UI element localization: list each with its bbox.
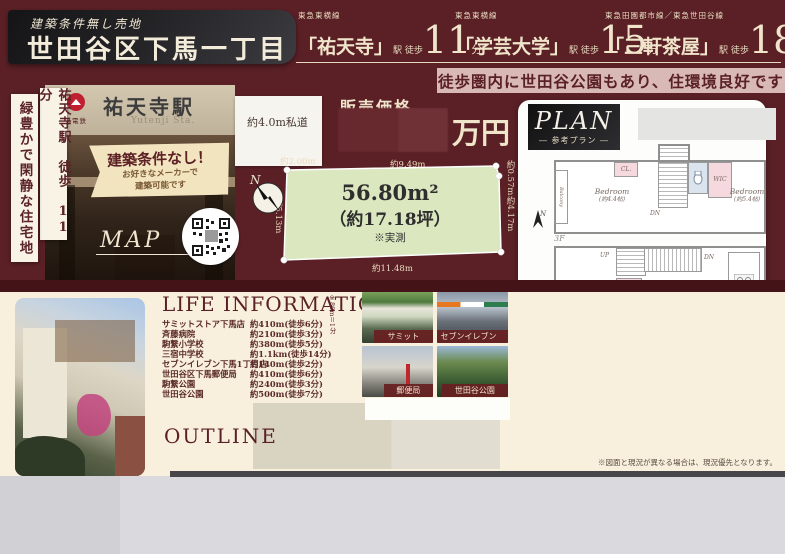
photo-summit: サミット [362,292,433,343]
stairs-2f-dn [644,248,702,272]
plan-badge: PLAN ― 参考プラン ― [528,104,620,150]
facility-name: 世田谷公園 [162,388,204,400]
park-note-text: 徒歩圏内に世田谷公園もあり、住環境良好です [438,70,784,92]
station-name: 「祐天寺」 [298,36,393,58]
station-walk-label: 駅 徒歩 [719,46,749,56]
station-line-label: 東急東横線 [455,10,605,21]
catchcopy-quiet-area: 緑豊かで閑静な住宅地 [11,94,38,262]
plan-compass-icon: N [528,208,548,230]
footer-disclaimer: ※図面と現況が異なる場合は、現況優先となります。 [0,457,777,468]
photo-caption: 郵便局 [384,384,433,397]
photo-detail [55,320,135,362]
catchcopy-station-walk: 祐天寺駅 徒歩 11分 [40,88,67,240]
station-access-sangenjaya: 東急田園都市線／東急世田谷線 「三軒茶屋」駅 徒歩18分 [605,10,783,62]
price-redacted-box [338,108,448,152]
list-item: セブンイレブン下馬1丁目店約140m(徒歩2分) [162,358,342,368]
bottom-dark-bar [170,471,785,477]
list-item: 世田谷区下馬郵便局約410m(徒歩6分) [162,368,342,378]
station-sign-romaji: Yutenji Sta. [131,116,195,126]
station-sign: 東急電鉄 祐天寺駅 Yutenji Sta. [45,85,235,135]
private-road-label: 約4.0m私道 [247,114,308,130]
list-item: サミットストア下馬店約410m(徒歩6分) [162,318,342,328]
station-access-yutenji: 東急東横線 「祐天寺」駅 徒歩11分 [298,10,450,62]
station-walk-label: 駅 徒歩 [393,46,423,56]
room-label: Bedroom [730,187,764,196]
floor3-plan: Balcony Bedroom (約4.4帖) CL. DN WIC Bedro… [554,160,766,234]
lot-measured-note: ※実測 [300,230,480,245]
life-information-list: サミットストア下馬店約410m(徒歩6分) 斉藤病院約210m(徒歩3分) 駒繋… [162,318,342,398]
station-name: 「学芸大学」 [455,36,569,58]
lot-dim-right-top: 約0.57m [504,160,516,196]
station-minutes: 18 [749,18,785,62]
photo-detail [77,394,111,436]
compass-icon: N [246,172,288,218]
room-wc [688,162,708,194]
map-label: MAP [100,228,162,253]
park-note-band: 徒歩圏内に世田谷公園もあり、住環境良好です [437,68,785,93]
price-unit: 万円 [452,110,510,152]
lot-dim-right: 約4.17m [504,196,516,232]
list-item: 斉藤病院約210m(徒歩3分) [162,328,342,338]
lot-dim-top: 約9.49m [390,158,426,170]
stairs-3f [658,162,688,208]
flyer-page: 建築条件無し売地 世田谷区下馬一丁目 東急東横線 「祐天寺」駅 徒歩11分 東急… [0,0,785,554]
outline-heading: OUTLINE [164,424,278,448]
map-underline [96,254,200,255]
seven-eleven-stripe [437,302,508,307]
photo-caption: 世田谷公園 [442,384,508,397]
stairs-2f-up [616,248,646,276]
life-information-heading: LIFE INFORMATION [162,292,394,316]
list-item: 三宿中学校約1.1km(徒歩14分) [162,348,342,358]
stairs-dn-label: DN [704,254,714,261]
room-wic: WIC [708,162,732,198]
photo-seven-eleven: セブンイレブン [437,292,508,343]
photo-setagaya-park: 世田谷公園 [437,346,508,397]
lot-area-sqm: 56.80m² [300,180,480,205]
lot-dim-bottom: 約11.48m [372,262,413,274]
room-bedroom2: Bedroom (約5.4帖) [732,164,762,226]
photo-post-office: 郵便局 [362,346,433,397]
white-redacted-box [365,398,510,420]
room-closet: CL. [614,162,638,177]
list-item: 世田谷公園約500m(徒歩7分) [162,388,342,398]
svg-text:N: N [539,210,547,218]
stairs-up-label: UP [600,252,609,259]
qr-code-icon [182,208,239,265]
room-area: (約5.4帖) [734,196,760,203]
plan-redacted-box [638,108,776,140]
plan-subtitle: ― 参考プラン ― [539,135,609,146]
photo-caption: サミット [374,330,433,343]
list-item: 駒繋公園約240m(徒歩3分) [162,378,342,388]
station-walk-label: 駅 徒歩 [569,46,599,56]
station-access-gakugeidaigaku: 東急東横線 「学芸大学」駅 徒歩15分 [455,10,605,62]
toilet-icon [693,171,703,185]
stairs-dn-label: DN [650,210,660,217]
room-balcony: Balcony [554,170,568,224]
lot-area-text: 56.80m² （約17.18坪） ※実測 [300,180,480,245]
lot-area-tsubo: （約17.18坪） [300,205,480,230]
maroon-divider-strip [0,280,785,292]
floor3-label: 3F [554,234,565,243]
station-name: 「三軒茶屋」 [605,36,719,58]
room-label: Bedroom [595,187,629,196]
header-divider [296,62,781,63]
property-photo [15,298,145,476]
plan-title: PLAN [535,109,613,133]
page-title: 世田谷区下馬一丁目 [27,29,288,66]
facility-distance: 約500m(徒歩7分) [250,388,323,400]
room-bedroom1: Bedroom (約4.4帖) [568,164,656,226]
qr-code-pattern [191,217,231,257]
photo-detail [15,436,85,476]
room-area: (約4.4帖) [599,196,625,203]
svg-text:N: N [249,173,261,187]
no-building-conditions-ribbon: 建築条件なし！ お好きなメーカーで 建築可能です [89,141,231,200]
list-item: 駒繋小学校約380m(徒歩5分) [162,338,342,348]
ribbon-line2: 建築可能です [135,180,186,193]
bottom-grey-band-left [0,476,120,554]
photo-caption: セブンイレブン [437,330,508,343]
